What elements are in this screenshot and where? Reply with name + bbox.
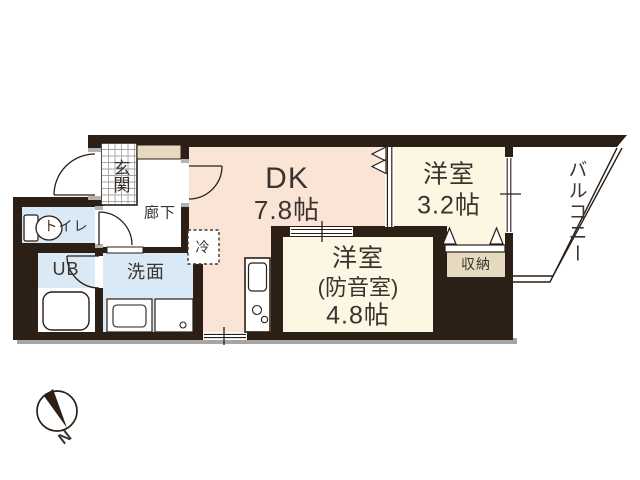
- bottom-right-wall-mass: [433, 277, 513, 340]
- washroom-label: 洗面: [127, 263, 165, 281]
- storage-label: 収納: [461, 257, 491, 271]
- soundproof-left-wall: [271, 226, 283, 332]
- ub-left-wall: [22, 253, 38, 340]
- soundproof-room-sub: (防音室): [318, 277, 399, 299]
- annex-left-wall: [13, 197, 22, 340]
- toilet-ub-wall: [13, 243, 103, 253]
- shoe-cabinet: [137, 145, 181, 159]
- entrance-opening: [88, 152, 101, 196]
- kitchen-counter: [245, 258, 270, 332]
- washer-pan: [155, 299, 193, 332]
- dk-size-label: 7.8帖: [254, 197, 320, 223]
- washer-drain: [180, 322, 186, 328]
- stove-burner-1: [253, 306, 262, 315]
- refrigerator-label: 冷: [196, 240, 211, 254]
- hallway-label: 廊下: [144, 206, 176, 221]
- floor-plan: DK 7.8帖 洋室 3.2帖 洋室 (防音室) 4.8帖 玄関 廊下 トイレ …: [0, 0, 640, 480]
- toilet-label: トイレ: [44, 219, 89, 233]
- bathtub-icon: [43, 292, 89, 330]
- western-room-size: 3.2帖: [417, 194, 481, 219]
- compass-icon: [37, 389, 77, 431]
- washroom-door-panel: [107, 247, 143, 253]
- unit-bath-label: UB: [52, 260, 79, 278]
- ub-door-opening: [95, 256, 103, 288]
- kitchen-sink: [249, 263, 267, 291]
- western-room-label: 洋室: [423, 163, 475, 188]
- balcony-label: バルコニー: [567, 160, 586, 265]
- entrance-label: 玄関: [112, 159, 129, 193]
- soundproof-room-label: 洋室: [332, 247, 384, 272]
- soundproof-room-size: 4.8帖: [326, 304, 390, 329]
- floor-plan-drawing: [0, 0, 640, 480]
- stove-burner-2: [261, 316, 267, 322]
- washroom-fixtures: [107, 299, 193, 332]
- dk-label: DK: [265, 164, 309, 194]
- dk-door-opening: [181, 163, 189, 203]
